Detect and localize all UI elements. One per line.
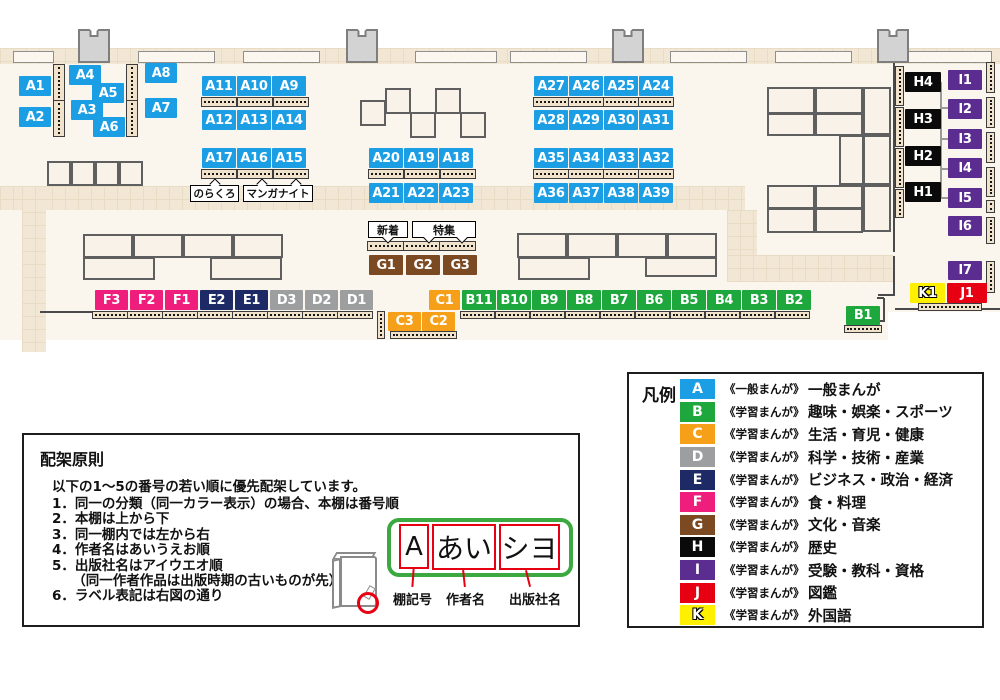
bookshelf-row: [740, 311, 775, 319]
wall-shelf: [670, 51, 747, 63]
bookshelf-row: [127, 311, 163, 319]
table-shelf: [95, 161, 119, 186]
bookshelf-column: [986, 132, 995, 163]
legend-series-type: 《一般まんが》: [724, 381, 808, 397]
bookshelf-row: [568, 97, 604, 107]
bookshelf-row: [337, 311, 373, 319]
shelf-badge-I4: I4: [948, 158, 982, 178]
shelf-badge-D3: D3: [270, 290, 303, 310]
table-shelf: [71, 161, 95, 186]
shelf-badge-A13: A13: [237, 110, 271, 130]
legend-row-E: E《学習まんが》ビジネス・政治・経済: [680, 468, 976, 491]
legend-series-type: 《学習まんが》: [724, 404, 808, 420]
bookshelf-row: [440, 169, 476, 179]
walkway: [727, 255, 893, 282]
bookshelf-column: [986, 217, 995, 244]
table-shelf: [667, 233, 717, 258]
table-shelf: [233, 234, 283, 258]
shelf-badge-I3: I3: [948, 129, 982, 149]
wall-shelf: [243, 51, 320, 63]
legend-series-type: 《学習まんが》: [724, 585, 808, 601]
bookshelf-row: [533, 97, 569, 107]
shelf-badge-A24: A24: [639, 76, 673, 96]
legend-series-type: 《学習まんが》: [724, 472, 808, 488]
shelf-badge-A32: A32: [639, 148, 673, 168]
bookshelf-row: [635, 311, 670, 319]
bookshelf-row: [568, 169, 604, 179]
bookshelf-row: [201, 97, 237, 107]
legend-category: 文化・音楽: [808, 514, 881, 535]
shelf-badge-A11: A11: [202, 76, 236, 96]
shelf-badge-A21: A21: [369, 183, 403, 203]
legend-row-G: G《学習まんが》文化・音楽: [680, 514, 976, 537]
legend-category: 一般まんが: [808, 379, 881, 400]
wall-line: [878, 294, 893, 296]
legend-row-K: K《学習まんが》外国語: [680, 604, 976, 627]
shelf-badge-A6: A6: [93, 117, 125, 137]
shelf-badge-G3: G3: [443, 255, 477, 275]
bookshelf-row: [638, 97, 674, 107]
legend-category: 趣味・娯楽・スポーツ: [808, 401, 953, 422]
shelf-label: マンガナイト: [243, 185, 313, 202]
shelf-badge-A28: A28: [534, 110, 568, 130]
bookshelf-row: [460, 311, 495, 319]
shelf-label: 特集: [412, 221, 476, 238]
shelf-badge-F3: F3: [95, 290, 128, 310]
wall-shelf: [903, 51, 992, 63]
bookshelf-row: [92, 311, 128, 319]
legend-series-type: 《学習まんが》: [724, 517, 808, 533]
table-shelf: [767, 208, 815, 233]
shelf-badge-I7: I7: [948, 261, 982, 280]
legend-color-badge: I: [680, 560, 715, 580]
table-shelf: [815, 87, 863, 114]
bookshelf-row: [603, 97, 639, 107]
shelf-badge-B11: B11: [462, 290, 496, 310]
shelf-badge-A15: A15: [272, 148, 306, 168]
bookshelf-row: [565, 311, 600, 319]
legend-row-I: I《学習まんが》受験・教科・資格: [680, 559, 976, 582]
shelf-badge-D1: D1: [340, 290, 373, 310]
bookshelf-row: [162, 311, 198, 319]
shelf-badge-A34: A34: [569, 148, 603, 168]
wall-shelf: [415, 51, 497, 63]
shelf-badge-A18: A18: [439, 148, 473, 168]
table-shelf: [517, 233, 567, 258]
table-shelf: [617, 233, 667, 258]
legend-row-J: J《学習まんが》図鑑: [680, 581, 976, 604]
shelf-badge-A26: A26: [569, 76, 603, 96]
shelf-badge-A35: A35: [534, 148, 568, 168]
pillar: [612, 29, 644, 63]
pillar-notch: [624, 29, 633, 37]
shelf-badge-A29: A29: [569, 110, 603, 130]
bookshelf-column: [986, 261, 995, 293]
shelf-badge-A39: A39: [639, 183, 673, 203]
shelf-badge-H4: H4: [905, 72, 941, 92]
shelf-badge-G2: G2: [406, 255, 440, 275]
bookshelf-column: [986, 97, 995, 128]
bookshelf-column: [986, 167, 995, 197]
shelf-badge-B10: B10: [497, 290, 531, 310]
bookshelf-row: [302, 311, 338, 319]
bookshelf-row: [439, 241, 476, 251]
legend-category: 外国語: [808, 605, 852, 626]
table-shelf: [133, 234, 183, 258]
shelf-badge-B3: B3: [742, 290, 776, 310]
bookshelf-column: [895, 66, 904, 106]
legend-series-type: 《学習まんが》: [724, 494, 808, 510]
bookshelf-row: [403, 241, 440, 251]
principles-title: 配架原則: [40, 446, 104, 470]
shelf-badge-A25: A25: [604, 76, 638, 96]
shelf-badge-A20: A20: [369, 148, 403, 168]
table-shelf: [460, 112, 486, 138]
legend-color-badge: H: [680, 537, 715, 557]
legend-series-type: 《学習まんが》: [724, 607, 808, 623]
shelf-badge-A27: A27: [534, 76, 568, 96]
shelf-badge-A37: A37: [569, 183, 603, 203]
bookshelf-row: [603, 169, 639, 179]
shelf-badge-A31: A31: [639, 110, 673, 130]
wall-shelf: [138, 51, 215, 63]
legend-panel: 凡例 A《一般まんが》一般まんがB《学習まんが》趣味・娯楽・スポーツC《学習まん…: [627, 372, 984, 628]
table-shelf: [518, 257, 590, 280]
shelf-badge-F1: F1: [165, 290, 198, 310]
bookshelf-row: [533, 169, 569, 179]
shelf-badge-A12: A12: [202, 110, 236, 130]
shelf-badge-A8: A8: [145, 63, 177, 83]
bookshelf-column: [986, 62, 995, 93]
table-shelf: [815, 208, 863, 233]
bookshelf-row: [273, 97, 309, 107]
legend-row-D: D《学習まんが》科学・技術・産業: [680, 446, 976, 469]
principles-list: 1．同一の分類（同一カラー表示）の場合、本棚は番号順2．本棚は上から下3．同一棚…: [52, 497, 399, 605]
bookshelf-row: [844, 325, 882, 333]
table-shelf: [767, 185, 815, 209]
shelf-badge-A22: A22: [404, 183, 438, 203]
table-shelf: [815, 113, 863, 136]
table-shelf: [183, 234, 233, 258]
legend-rows: A《一般まんが》一般まんがB《学習まんが》趣味・娯楽・スポーツC《学習まんが》生…: [680, 378, 976, 627]
wall-shelf: [13, 51, 54, 63]
shelf-badge-E2: E2: [200, 290, 233, 310]
shelf-badge-I6: I6: [948, 216, 982, 236]
shelf-badge-H3: H3: [905, 109, 941, 129]
pillar: [877, 29, 909, 63]
bookshelf-row: [495, 311, 530, 319]
table-shelf: [863, 135, 891, 185]
table-shelf: [119, 161, 143, 186]
bookshelf-row: [237, 169, 273, 179]
legend-color-badge: C: [680, 424, 715, 444]
shelf-badge-F2: F2: [130, 290, 163, 310]
shelf-badge-E1: E1: [235, 290, 268, 310]
shelf-badge-A2: A2: [19, 107, 51, 127]
legend-category: 図鑑: [808, 582, 837, 603]
bookshelf-row: [197, 311, 233, 319]
legend-row-A: A《一般まんが》一般まんが: [680, 378, 976, 401]
bookshelf-row: [775, 311, 810, 319]
shelf-badge-B2: B2: [777, 290, 811, 310]
table-shelf: [385, 88, 411, 114]
bookshelf-column: [986, 200, 995, 213]
shelf-badge-A19: A19: [404, 148, 438, 168]
bookshelf-row: [232, 311, 268, 319]
table-shelf: [767, 87, 815, 114]
shelf-badge-C2: C2: [422, 312, 455, 331]
shelf-badge-D2: D2: [305, 290, 338, 310]
shelf-badge-B9: B9: [532, 290, 566, 310]
wall-shelf: [775, 51, 852, 63]
pillar-notch: [889, 29, 898, 37]
principles-item: 4．作者名はあいうえお順: [52, 543, 399, 558]
bookshelf-column: [53, 64, 65, 101]
legend-category: 受験・教科・資格: [808, 560, 924, 581]
table-shelf: [83, 257, 155, 280]
bookshelf-column: [126, 64, 138, 101]
table-shelf: [410, 112, 436, 138]
table-shelf: [863, 185, 891, 232]
bookshelf-column: [895, 107, 904, 147]
table-shelf: [360, 100, 386, 126]
bookshelf-row: [273, 169, 309, 179]
legend-category: 歴史: [808, 537, 837, 558]
table-shelf: [47, 161, 71, 186]
legend-color-badge: B: [680, 402, 715, 422]
shelf-badge-H2: H2: [905, 146, 941, 166]
bookshelf-column: [895, 189, 904, 218]
table-shelf: [210, 257, 282, 280]
legend-series-type: 《学習まんが》: [724, 539, 808, 555]
wall-line: [40, 311, 94, 313]
table-shelf: [83, 234, 133, 258]
table-shelf: [567, 233, 617, 258]
principles-intro: 以下の1～5の番号の若い順に優先配架しています。: [52, 475, 366, 495]
shelf-badge-I1: I1: [948, 70, 982, 90]
legend-color-badge: F: [680, 492, 715, 512]
legend-title: 凡例: [642, 381, 676, 406]
principles-item: 5．出版社名はアイウエオ順: [52, 559, 399, 574]
shelf-badge-A9: A9: [272, 76, 306, 96]
wall-line: [877, 297, 884, 299]
shelving-principles-panel: 配架原則 以下の1～5の番号の若い順に優先配架しています。 1．同一の分類（同一…: [22, 433, 580, 627]
table-shelf: [435, 88, 461, 114]
legend-color-badge: A: [680, 379, 715, 399]
shelf-badge-H1: H1: [905, 182, 941, 202]
principles-item: 6．ラベル表記は右図の通り: [52, 589, 399, 604]
legend-series-type: 《学習まんが》: [724, 562, 808, 578]
wall-line: [893, 256, 895, 296]
wall-shelf: [510, 51, 587, 63]
pillar-notch: [90, 29, 99, 37]
bookshelf-row: [600, 311, 635, 319]
legend-series-type: 《学習まんが》: [724, 449, 808, 465]
shelf-badge-A33: A33: [604, 148, 638, 168]
bookshelf-row: [367, 241, 404, 251]
bookshelf-column: [53, 100, 65, 137]
bookshelf-row: [530, 311, 565, 319]
bookshelf-row: [237, 97, 273, 107]
principles-item: 3．同一棚内では左から右: [52, 528, 399, 543]
shelf-badge-I2: I2: [948, 99, 982, 119]
shelf-badge-B5: B5: [672, 290, 706, 310]
table-shelf: [767, 113, 815, 136]
shelf-badge-A30: A30: [604, 110, 638, 130]
floor-map: A1A2A4A5A3A6A8A7A11A10A9A12A13A14A17A16A…: [0, 0, 1000, 362]
bookshelf-row: [670, 311, 705, 319]
pillar-notch: [358, 29, 367, 37]
shelf-badge-C1: C1: [429, 290, 460, 310]
shelf-badge-B7: B7: [602, 290, 636, 310]
table-shelf: [815, 185, 863, 209]
bookshelf-column: [126, 100, 138, 137]
legend-category: 食・料理: [808, 492, 866, 513]
shelf-badge-A1: A1: [19, 76, 51, 96]
shelf-badge-A36: A36: [534, 183, 568, 203]
walkway: [727, 210, 757, 258]
legend-color-badge: G: [680, 515, 715, 535]
bookshelf-row: [638, 169, 674, 179]
principles-item: 2．本棚は上から下: [52, 512, 399, 527]
legend-category: ビジネス・政治・経済: [808, 469, 953, 490]
bookshelf-row: [918, 303, 982, 311]
legend-series-type: 《学習まんが》: [724, 426, 808, 442]
table-shelf: [645, 257, 717, 277]
bookshelf-column: [895, 148, 904, 188]
legend-row-B: B《学習まんが》趣味・娯楽・スポーツ: [680, 401, 976, 424]
pillar: [78, 29, 110, 63]
bookshelf-row: [705, 311, 740, 319]
shelf-badge-A38: A38: [604, 183, 638, 203]
shelf-badge-B8: B8: [567, 290, 601, 310]
shelf-badge-A23: A23: [439, 183, 473, 203]
bookshelf-row: [368, 169, 404, 179]
shelf-badge-A10: A10: [237, 76, 271, 96]
shelf-badge-I5: I5: [948, 188, 982, 208]
legend-row-C: C《学習まんが》生活・育児・健康: [680, 423, 976, 446]
legend-category: 科学・技術・産業: [808, 447, 924, 468]
shelf-badge-J1: J1: [947, 283, 987, 303]
legend-color-badge: K: [680, 605, 715, 625]
legend-category: 生活・育児・健康: [808, 424, 924, 445]
bookshelf-row: [267, 311, 303, 319]
shelf-badge-A14: A14: [272, 110, 306, 130]
shelf-badge-B6: B6: [637, 290, 671, 310]
shelf-badge-A17: A17: [202, 148, 236, 168]
walkway: [22, 186, 46, 352]
wall-line: [883, 298, 885, 322]
bookshelf-row: [201, 169, 237, 179]
bookshelf-row: [404, 169, 440, 179]
shelf-badge-G1: G1: [369, 255, 403, 275]
legend-color-badge: J: [680, 583, 715, 603]
legend-color-badge: D: [680, 447, 715, 467]
table-shelf: [839, 135, 864, 185]
shelf-badge-B1: B1: [846, 306, 880, 325]
bookshelf-column: [377, 311, 385, 339]
table-shelf: [863, 87, 891, 135]
shelf-badge-K1: K1: [910, 283, 945, 303]
legend-color-badge: E: [680, 470, 715, 490]
legend-row-H: H《学習まんが》歴史: [680, 536, 976, 559]
shelf-badge-A7: A7: [145, 98, 177, 118]
pillar: [346, 29, 378, 63]
shelf-badge-A4: A4: [69, 65, 101, 85]
bookshelf-row: [390, 331, 457, 339]
shelf-badge-B4: B4: [707, 290, 741, 310]
shelf-badge-C3: C3: [388, 312, 421, 331]
legend-row-F: F《学習まんが》食・料理: [680, 491, 976, 514]
shelf-badge-A16: A16: [237, 148, 271, 168]
